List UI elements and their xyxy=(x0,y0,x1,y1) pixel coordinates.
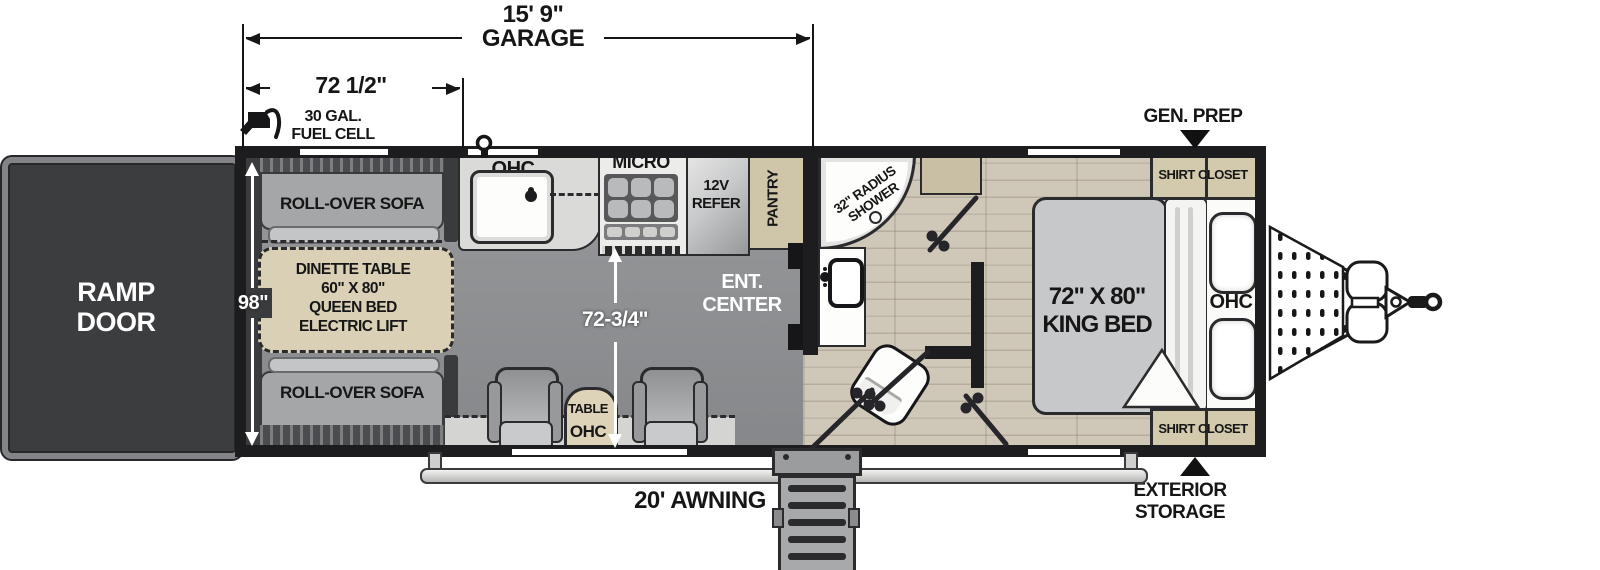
dim-tick xyxy=(242,24,244,150)
arrow-down-icon xyxy=(245,432,259,446)
dim-tick xyxy=(812,24,814,150)
arrow-left-icon xyxy=(246,33,260,45)
hitch-ball-icon xyxy=(1426,295,1440,309)
water-port-icon xyxy=(478,137,491,159)
tank-bracket xyxy=(1352,298,1378,307)
rock-guard-vents xyxy=(1270,227,1343,379)
fuel-nozzle-icon xyxy=(240,110,279,137)
gen-prep-label: GEN. PREP xyxy=(1128,106,1258,127)
step-landing xyxy=(772,448,862,476)
step-tab xyxy=(848,508,860,528)
rv-floorplan: RAMP DOOR ROLL-OVER SOFA DINETTE TABLE 6… xyxy=(0,0,1600,570)
door-handle-icon xyxy=(854,233,982,412)
interior-dim-line xyxy=(614,342,617,440)
sofa-length-label: 72 1/2" xyxy=(270,73,432,99)
gen-prep-arrow-icon xyxy=(1180,130,1210,149)
arrow-down-icon xyxy=(608,434,622,448)
door-swing-icon xyxy=(812,198,1006,448)
step-body xyxy=(778,475,856,570)
arrow-right-icon xyxy=(446,83,460,95)
propane-tank xyxy=(1347,262,1387,301)
width-dim-line xyxy=(251,318,254,436)
fuel-cell-label-2: FUEL CELL xyxy=(278,126,388,144)
dim-tick xyxy=(462,78,464,150)
exterior-storage-arrow-icon xyxy=(1180,457,1210,476)
entry-steps xyxy=(772,448,862,570)
fuel-cell-label-1: 30 GAL. xyxy=(278,108,388,126)
arrow-up-icon xyxy=(245,162,259,176)
garage-word-label: GARAGE xyxy=(462,26,604,53)
tongue-assembly xyxy=(1270,227,1440,379)
coupler-frame xyxy=(1386,288,1410,317)
exterior-storage-label-2: STORAGE xyxy=(1110,502,1250,523)
arrow-up-icon xyxy=(608,248,622,262)
body-width-label: 98" xyxy=(228,292,278,314)
interior-width-label: 72-3/4" xyxy=(565,308,665,332)
width-dim-line xyxy=(251,168,254,288)
bed-fold-corner xyxy=(1124,350,1198,407)
arrow-left-icon xyxy=(246,83,260,95)
propane-tank xyxy=(1347,303,1387,342)
arrow-right-icon xyxy=(796,33,810,45)
step-tab xyxy=(772,508,784,528)
